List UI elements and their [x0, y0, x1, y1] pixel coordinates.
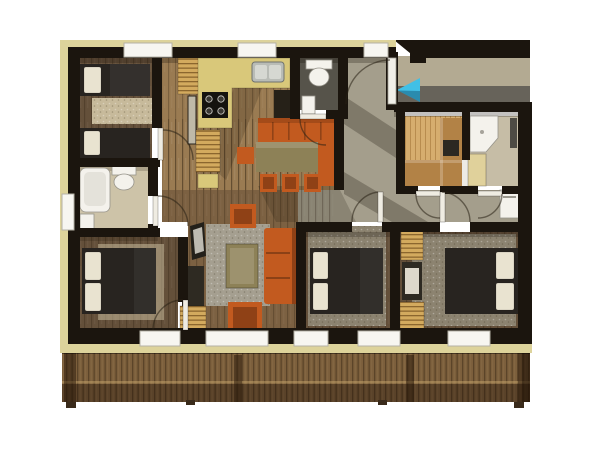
armchair-seat [234, 209, 252, 224]
pillow [85, 283, 101, 311]
duvet-highlight [134, 248, 156, 314]
door-leaf [478, 191, 502, 196]
coffee-table-top [230, 248, 254, 284]
wall-segment [152, 47, 162, 128]
pillow [496, 252, 514, 279]
window [62, 194, 74, 230]
wall-shadow [68, 237, 158, 241]
deck-foot [66, 402, 76, 408]
armchair-seat [233, 307, 257, 329]
dining-stool [237, 147, 254, 164]
deck-post [406, 355, 414, 402]
pantry-shelves [196, 130, 220, 172]
window [294, 331, 328, 346]
door-leaf [378, 192, 383, 222]
window [124, 43, 172, 57]
pillow [84, 131, 100, 155]
pillow [85, 252, 101, 280]
washer-door-line [503, 196, 516, 198]
door-leaf [300, 114, 326, 119]
sauna-bench [405, 160, 462, 186]
wall-segment [334, 119, 344, 190]
wall-segment [290, 110, 300, 119]
duvet-highlight [110, 64, 150, 96]
wall-segment [148, 166, 158, 196]
toilet [309, 68, 329, 86]
wall-segment [396, 112, 405, 194]
sofa-cushion-line [266, 252, 290, 254]
door-leaf [440, 192, 445, 222]
deck-rail [62, 381, 530, 384]
wall-segment [462, 112, 470, 160]
bench-seam [272, 122, 274, 140]
table-highlight [256, 142, 318, 148]
wall-segment [394, 102, 532, 112]
burner [206, 96, 212, 102]
wall-segment [68, 158, 160, 167]
washing-machine [500, 190, 519, 218]
wall-segment [296, 222, 306, 328]
wall-segment [390, 222, 400, 328]
wall-segment [502, 186, 518, 194]
deck-foot [186, 400, 195, 405]
duvet-highlight [360, 248, 383, 314]
deck-foot [514, 402, 524, 408]
pillow [496, 283, 514, 310]
shower-drain [480, 130, 484, 134]
deck-post [234, 355, 242, 402]
deck-railing-shadow [62, 384, 530, 402]
tall-mirror [188, 96, 196, 144]
door-leaf [153, 196, 158, 226]
door-leaf [183, 300, 188, 330]
sink-bowl [255, 65, 267, 79]
bench-seam [288, 122, 290, 140]
door-leaf [158, 128, 163, 160]
pillow [313, 283, 328, 310]
bench-edge [405, 160, 462, 163]
burner [206, 108, 212, 114]
wall-shadow [394, 112, 518, 117]
pillow [84, 67, 101, 93]
shower-bench [468, 154, 486, 186]
wc-sink [302, 96, 315, 114]
entrance-door [388, 58, 396, 104]
wall-segment [396, 186, 418, 194]
cooktop [202, 92, 228, 118]
radiator [510, 118, 517, 148]
rug-speckle [92, 98, 152, 124]
toilet [114, 174, 134, 190]
window [364, 43, 388, 57]
stool-seat [285, 177, 296, 189]
bedroom-center [310, 248, 383, 314]
wall-segment [68, 228, 160, 237]
dresser-top [405, 268, 419, 294]
fridge [274, 90, 292, 118]
stool-seat [307, 177, 318, 189]
window [358, 331, 400, 346]
door-leaf [416, 191, 440, 196]
deck-side-face [522, 352, 530, 402]
window [238, 43, 276, 57]
burner [218, 108, 224, 114]
porch-canopy-step [410, 50, 426, 63]
sauna-glass [462, 160, 468, 186]
window [206, 331, 268, 346]
kitchen-cabinet [198, 174, 218, 188]
deck-post [64, 353, 76, 402]
entrance-porch [394, 40, 530, 108]
wall-segment [338, 47, 348, 119]
bench-edge [440, 118, 443, 186]
floorplan-canvas [0, 0, 600, 450]
burner [218, 96, 224, 102]
bench-seam [304, 122, 306, 140]
wall-segment [470, 222, 532, 232]
wall-segment [290, 47, 300, 119]
floorplan-image [0, 0, 600, 450]
pillow [313, 252, 328, 279]
wall-segment [178, 237, 188, 302]
stool-seat [263, 177, 274, 189]
bench-seam [320, 122, 322, 140]
window [140, 331, 180, 346]
window [448, 331, 490, 346]
sauna-stove [443, 140, 459, 156]
sink-bowl [269, 65, 281, 79]
sofa-cushion-line [266, 277, 290, 279]
bathroom-sink [80, 214, 94, 230]
deck-foot [378, 400, 387, 405]
balcony-deck [62, 351, 530, 408]
bathtub-inner [84, 172, 106, 206]
